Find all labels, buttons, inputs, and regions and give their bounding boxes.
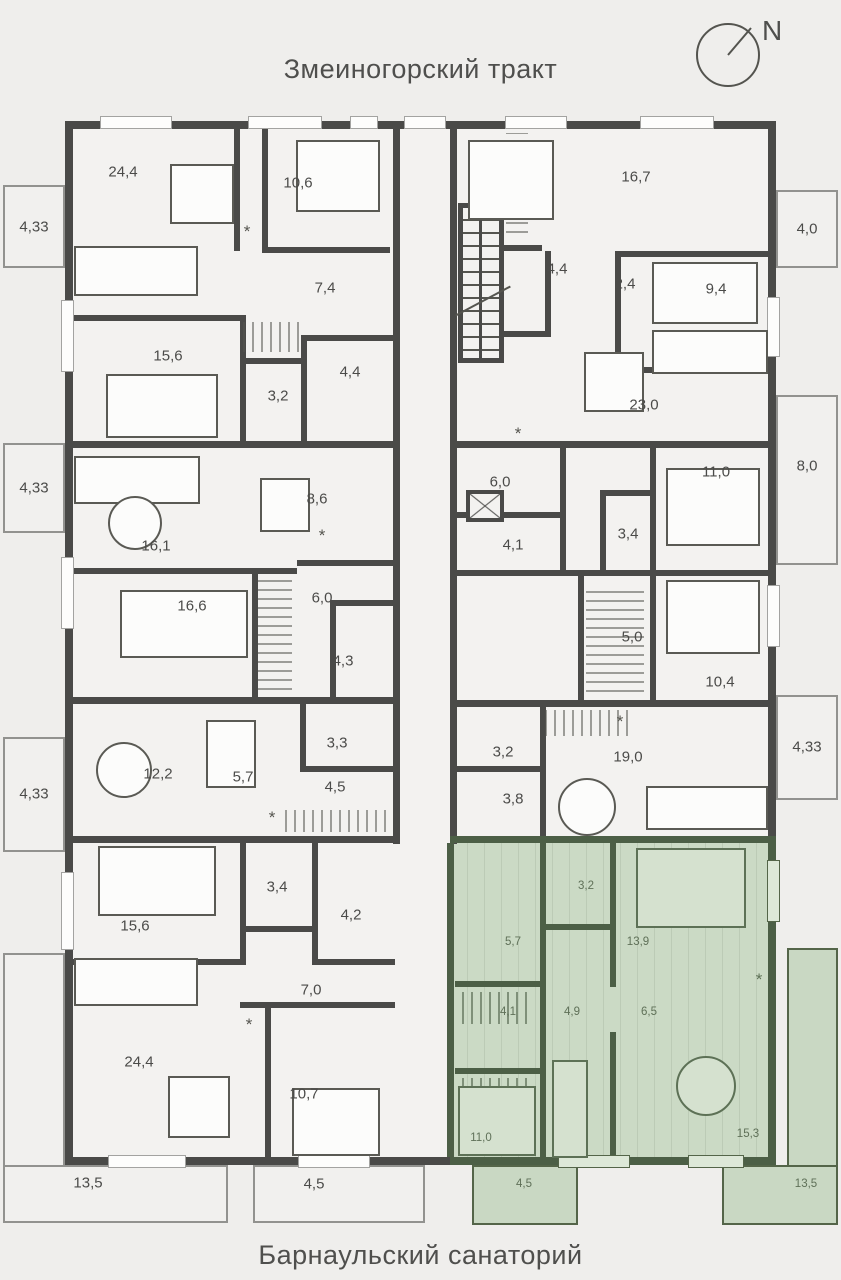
wall [301,335,307,441]
window [688,1155,744,1168]
wall-highlighted [540,843,546,987]
wall [578,576,584,700]
window [298,1155,370,1168]
wall-highlighted [447,843,454,1157]
wall [450,129,457,844]
balcony-area-label: 4,0 [797,221,818,238]
wall [65,441,393,448]
bed-icon [468,140,554,220]
sanatorium-label: Барнаульский санаторий [0,1240,841,1271]
wall [300,766,395,772]
terrace-area-label: 13,5 [795,1178,817,1190]
wall-highlighted [610,1032,616,1158]
balcony-area-label: 4,33 [792,739,821,756]
wall-highlighted [610,843,616,987]
room-area-label: 10,4 [705,674,734,691]
window [61,300,74,372]
room-area-label: 2,4 [615,276,636,293]
room-area-label: 4,1 [503,537,524,554]
sofa-icon [74,246,198,296]
terrace-highlighted [472,1165,578,1225]
room-area-label: 19,0 [613,749,642,766]
room-area-label: 5,7 [505,936,521,948]
wall [262,129,268,251]
terrace-area-label: 4,5 [516,1178,532,1190]
room-area-label: 16,7 [621,169,650,186]
window [767,585,780,647]
window [108,1155,186,1168]
wardrobe-shelf [462,992,534,1024]
wall [312,959,395,965]
room-area-label: 4,4 [340,364,361,381]
wall [65,697,393,704]
terrace-area-label: 13,5 [73,1175,102,1192]
sofa-icon [652,330,768,374]
compass-north-label: N [762,15,782,46]
bed-icon [106,374,218,438]
dining-table-icon [558,778,616,836]
terrace-area-label: 4,5 [304,1176,325,1193]
wall [234,129,240,251]
sofa-icon [646,786,768,830]
wall [768,121,776,844]
wall [265,1008,271,1158]
wall [393,129,400,844]
room-area-label: 11,0 [470,1132,492,1144]
bed-icon [666,580,760,654]
washer-icon: * [319,526,326,546]
window [767,860,780,922]
wall-highlighted [540,924,612,930]
dining-table-icon [260,478,310,532]
room-area-label: 16,1 [141,538,170,555]
room-area-label: 10,6 [283,175,312,192]
wall [240,1002,395,1008]
terrace-highlighted [787,948,838,1167]
room-area-label: 3,2 [578,880,594,892]
wall [457,700,768,707]
washer-icon: * [756,970,763,990]
wall [300,704,306,772]
window [767,297,780,357]
balcony-area-label: 8,0 [797,458,818,475]
wall [330,600,336,697]
dining-table-icon [676,1056,736,1116]
bed-icon [636,848,746,928]
room-area-label: 13,9 [627,936,649,948]
wall [65,315,243,321]
wall [240,843,246,965]
wall [307,335,393,341]
room-area-label: 23,0 [629,397,658,414]
room-area-label: 3,4 [267,879,288,896]
wall [457,766,542,772]
room-area-label: 15,6 [153,348,182,365]
balcony-area-label: 4,33 [19,219,48,236]
room-area-label: 3,2 [268,388,289,405]
room-area-label: 24,4 [108,164,137,181]
wall-highlighted [450,836,776,843]
wall-highlighted [455,981,542,987]
window [505,116,567,129]
room-area-label: 7,4 [315,280,336,297]
room-area-label: 4,1 [500,1006,516,1018]
room-area-label: 16,6 [177,598,206,615]
washer-icon: * [515,424,522,444]
terrace [253,1165,425,1223]
room-area-label: 9,4 [706,281,727,298]
wall [312,843,318,965]
room-area-label: 4,4 [547,261,568,278]
room-area-label: 3,8 [503,791,524,808]
terrace-highlighted [722,1165,838,1225]
room-area-label: 12,2 [143,766,172,783]
room-area-label: 4,9 [564,1006,580,1018]
wardrobe-shelf [243,322,299,352]
window [350,116,378,129]
wardrobe-shelf [258,580,292,690]
washer-icon: * [269,808,276,828]
room-area-label: 11,0 [702,464,730,481]
wall [650,448,656,574]
room-area-label: 3,4 [618,526,639,543]
wall [650,576,656,700]
room-area-label: 10,7 [289,1086,318,1103]
wardrobe-shelf [285,810,391,832]
window [61,872,74,950]
window [100,116,172,129]
dining-table-icon [170,164,234,224]
room-area-label: 4,5 [325,779,346,796]
room-area-label: 5,0 [622,629,643,646]
wall-highlighted [540,981,546,1158]
room-area-label: 3,2 [493,744,514,761]
bed-icon [458,1086,536,1156]
room-area-label: 6,5 [641,1006,657,1018]
wall [600,490,606,574]
room-area-label: 8,6 [307,491,328,508]
room-area-label: 4,2 [341,907,362,924]
washer-icon: * [617,712,624,732]
terrace [3,1165,228,1223]
wall [65,121,73,1165]
room-area-label: 6,0 [490,474,511,491]
wall [262,247,390,253]
balcony [776,395,838,565]
wall-highlighted [455,1068,542,1074]
washer-icon: * [244,222,251,242]
window [640,116,714,129]
dining-table-icon [168,1076,230,1138]
wall [65,836,393,843]
room-area-label: 3,3 [327,735,348,752]
room-area-label: 4,3 [333,653,354,670]
room-area-label: 7,0 [301,982,322,999]
wall [297,560,393,566]
window [61,557,74,629]
wall [600,490,652,496]
wall [457,570,768,576]
terrace [3,953,65,1167]
room-area-label: 5,7 [233,769,254,786]
entrance-door [404,116,446,129]
room-area-label: 15,3 [737,1128,759,1140]
wall [240,926,314,932]
wall [560,448,566,574]
wall [615,251,776,257]
compass-icon: N [692,8,802,98]
bed-icon [98,846,216,916]
wall [65,568,297,574]
wall [457,441,768,448]
window [248,116,322,129]
elevator-icon [466,490,504,522]
balcony-area-label: 4,33 [19,786,48,803]
floor-plan-canvas: Змеиногорский тракт Барнаульский санатор… [0,0,841,1280]
wall [330,600,393,606]
washer-icon: * [246,1015,253,1035]
wall [240,358,307,364]
room-area-label: 24,4 [124,1054,153,1071]
room-area-label: 6,0 [312,590,333,607]
balcony-area-label: 4,33 [19,480,48,497]
sofa-icon [552,1060,588,1158]
room-area-label: 15,6 [120,918,149,935]
staircase-divider [479,206,482,360]
sofa-icon [74,958,198,1006]
